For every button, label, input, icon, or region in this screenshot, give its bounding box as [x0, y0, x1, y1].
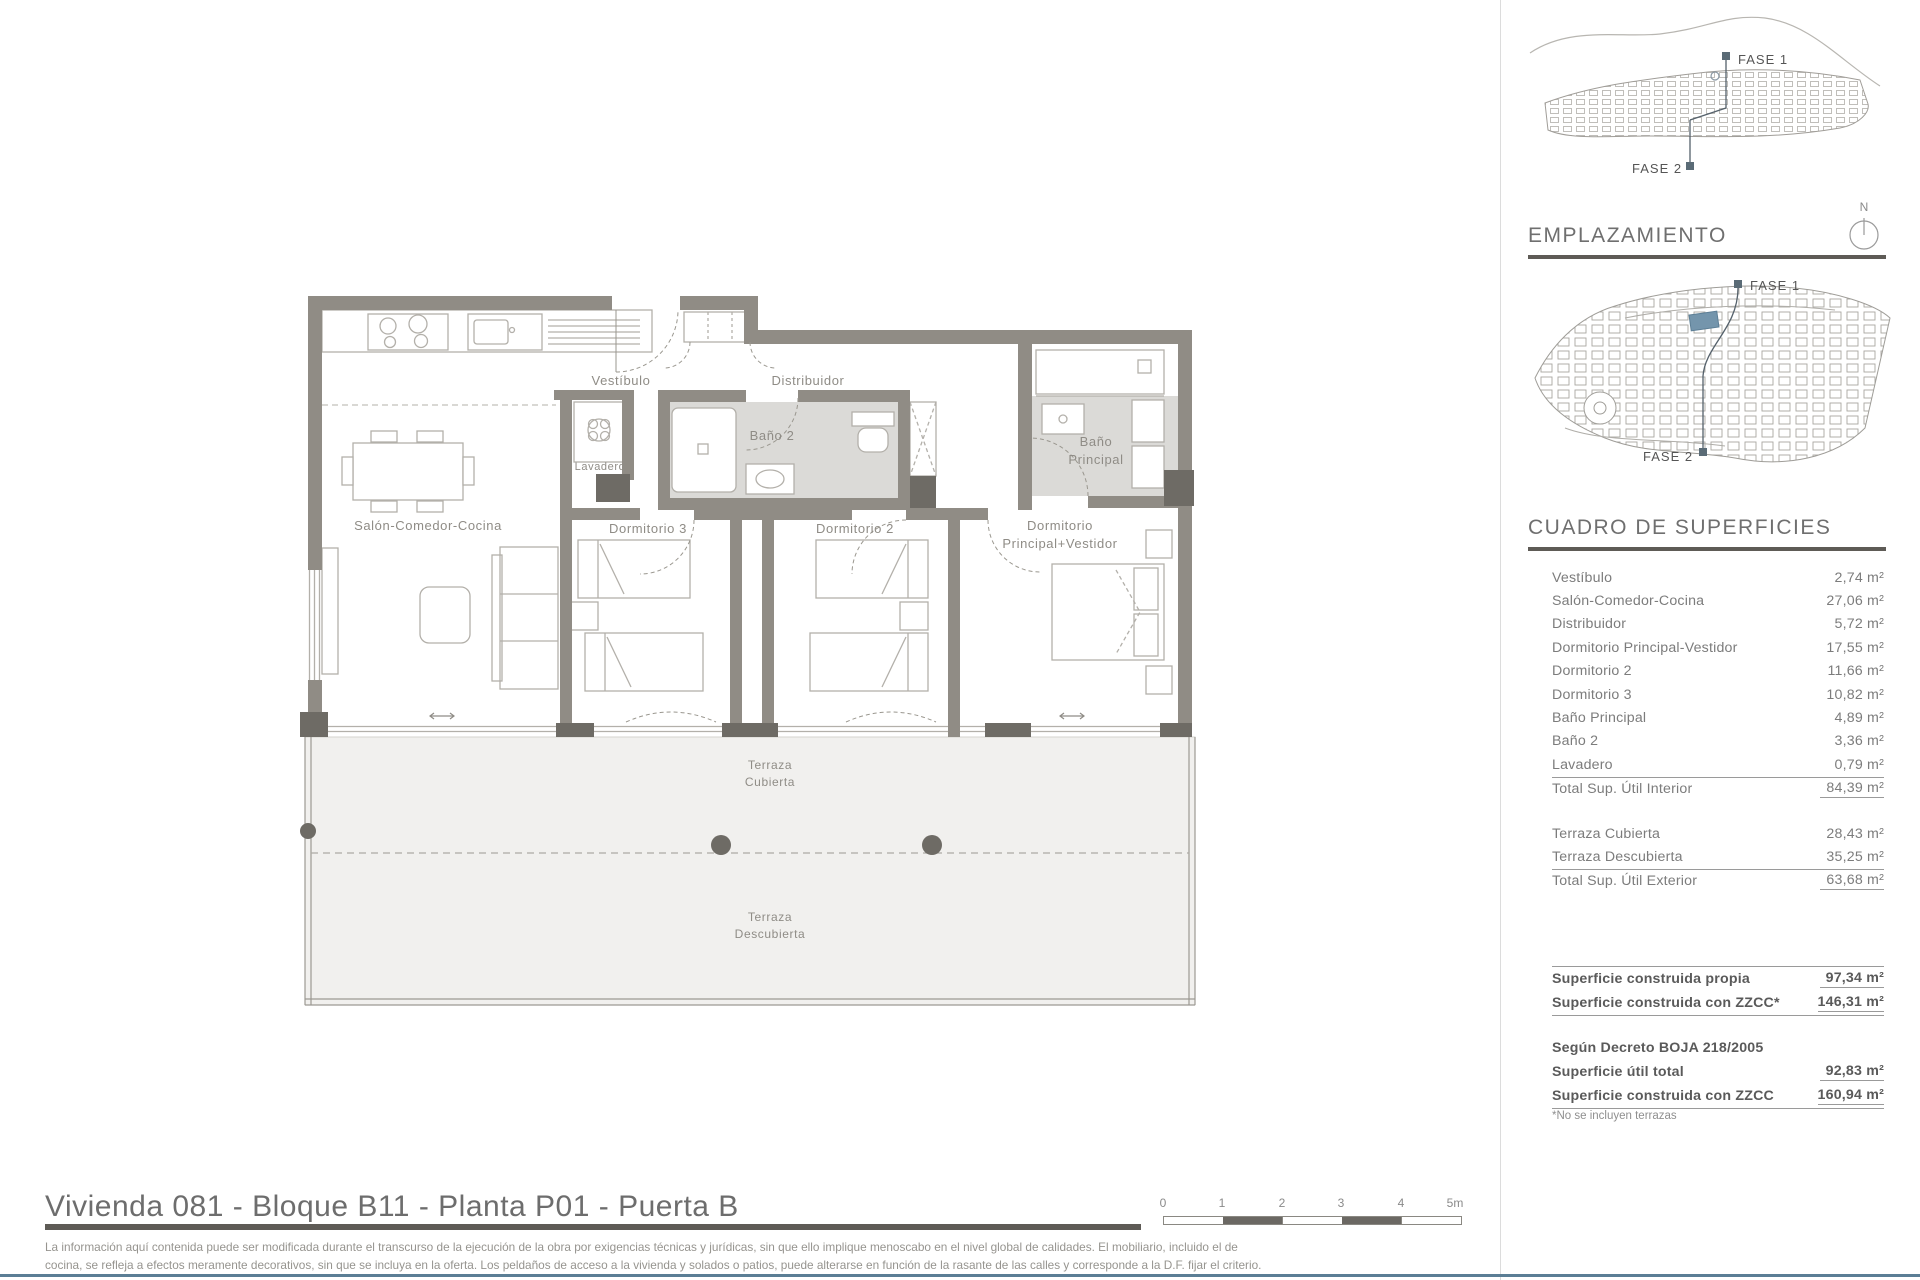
room-label-terraza-descubierta2: Descubierta — [735, 927, 806, 941]
room-label-dormitorio-principal2: Principal+Vestidor — [1002, 536, 1117, 551]
floor-plan-page: Vestíbulo Distribuidor Baño 2 Lavadero D… — [0, 0, 1920, 1280]
title-underline — [45, 1224, 1141, 1230]
terrace-pillar — [711, 835, 731, 855]
scale-tick-label: 3 — [1338, 1196, 1345, 1210]
scale-segment — [1401, 1217, 1461, 1224]
fase1-marker — [1722, 52, 1730, 60]
floor-plan-drawing: Vestíbulo Distribuidor Baño 2 Lavadero D… — [0, 0, 1500, 1280]
dining-table — [342, 431, 474, 512]
row-value: 17,55 m² — [1826, 640, 1884, 656]
site-overview-map: FASE 1 FASE 2 — [1510, 8, 1910, 178]
sofa — [492, 547, 558, 689]
row-value: 2,74 m² — [1835, 570, 1885, 586]
shower — [1036, 350, 1164, 394]
sink — [746, 464, 794, 494]
row-label: Lavadero — [1552, 757, 1613, 773]
row-value: 63,68 m² — [1820, 872, 1884, 890]
scale-tick-label: 5m — [1447, 1196, 1464, 1210]
slide-arrow — [430, 713, 1084, 719]
row-value: 146,31 m² — [1818, 994, 1884, 1012]
hall-closet — [910, 402, 936, 476]
tv-unit — [322, 548, 338, 674]
room-label-bano-principal: Baño — [1080, 434, 1113, 449]
room-label-distribuidor: Distribuidor — [772, 373, 845, 388]
row-label: Dormitorio 2 — [1552, 663, 1632, 679]
row-label: Baño Principal — [1552, 710, 1646, 726]
scale-segment — [1164, 1217, 1223, 1224]
fase2-label: FASE 2 — [1632, 161, 1682, 176]
total-exterior-row: Total Sup. Útil Exterior63,68 m² — [1552, 869, 1884, 893]
room-label-bano-principal2: Principal — [1068, 452, 1123, 467]
kitchen-counter — [322, 310, 652, 352]
row-value: 160,94 m² — [1818, 1087, 1884, 1105]
double-bed — [1052, 564, 1164, 660]
bed — [578, 540, 690, 598]
site-plan-map: FASE 1 FASE 2 — [1505, 258, 1915, 503]
row-label: Vestíbulo — [1552, 570, 1612, 586]
table-row: Dormitorio Principal-Vestidor17,55 m² — [1552, 636, 1884, 659]
scale-tick-label: 0 — [1160, 1196, 1167, 1210]
coffee-table — [420, 587, 470, 643]
room-label-lavadero: Lavadero — [575, 461, 626, 473]
table-row: Baño 23,36 m² — [1552, 730, 1884, 753]
highlighted-block — [1689, 311, 1719, 331]
bed — [810, 633, 928, 691]
table-row: Lavadero0,79 m² — [1552, 753, 1884, 776]
row-value: 28,43 m² — [1826, 826, 1884, 842]
row-value: 10,82 m² — [1826, 687, 1884, 703]
room-label-salon: Salón-Comedor-Cocina — [354, 518, 502, 533]
table-row: Vestíbulo2,74 m² — [1552, 566, 1884, 589]
table-row: Terraza Cubierta28,43 m² — [1552, 822, 1884, 845]
room-label-terraza-cubierta: Terraza — [748, 758, 792, 772]
terrace-pillar — [300, 823, 316, 839]
heading-underline — [1528, 547, 1886, 551]
terrace-pillar — [922, 835, 942, 855]
exterior-table: Terraza Cubierta28,43 m² Terraza Descubi… — [1552, 822, 1884, 893]
room-label-terraza-descubierta: Terraza — [748, 910, 792, 924]
table-row: Terraza Descubierta35,25 m² — [1552, 845, 1884, 868]
room-label-bano2: Baño 2 — [750, 428, 795, 443]
vanity — [1042, 404, 1084, 434]
toilet — [1132, 400, 1164, 442]
room-label-dormitorio2: Dormitorio 2 — [816, 521, 894, 536]
built-area-row: Superficie construida con ZZCC*146,31 m² — [1552, 991, 1884, 1016]
scale-segment — [1223, 1217, 1282, 1224]
row-label: Baño 2 — [1552, 733, 1598, 749]
scale-bar: 0 1 2 3 4 5m — [1163, 1196, 1461, 1230]
row-label: Superficie construida con ZZCC — [1552, 1088, 1774, 1104]
row-value: 3,36 m² — [1835, 733, 1885, 749]
room-label-dormitorio-principal: Dormitorio — [1027, 518, 1093, 533]
fase2-marker — [1699, 448, 1707, 456]
row-value: 97,34 m² — [1820, 970, 1884, 988]
row-label: Terraza Descubierta — [1552, 849, 1683, 865]
disclaimer-line-1: La información aquí contenida puede ser … — [45, 1239, 1505, 1256]
row-label: Dormitorio 3 — [1552, 687, 1632, 703]
buildings-band — [1545, 70, 1868, 137]
room-label-dormitorio3: Dormitorio 3 — [609, 521, 687, 536]
table-row: Dormitorio 211,66 m² — [1552, 660, 1884, 683]
decreto-row: Superficie construida con ZZCC160,94 m² — [1552, 1084, 1884, 1109]
row-label: Terraza Cubierta — [1552, 826, 1660, 842]
built-area-row: Superficie construida propia97,34 m² — [1552, 966, 1884, 991]
sidebar-divider — [1500, 0, 1501, 1280]
row-label: Dormitorio Principal-Vestidor — [1552, 640, 1738, 656]
fase2-marker — [1686, 162, 1694, 170]
built-area-table: Superficie construida propia97,34 m² Sup… — [1552, 966, 1884, 1016]
scale-segment — [1282, 1217, 1342, 1224]
footer-accent-line — [0, 1274, 1920, 1277]
scale-tick-label: 2 — [1279, 1196, 1286, 1210]
table-row: Distribuidor5,72 m² — [1552, 613, 1884, 636]
nightstand — [1146, 530, 1172, 558]
decreto-title: Según Decreto BOJA 218/2005 — [1552, 1040, 1763, 1056]
row-value: 84,39 m² — [1820, 780, 1884, 798]
row-label: Superficie construida con ZZCC* — [1552, 995, 1780, 1011]
emplazamiento-title: EMPLAZAMIENTO — [1528, 224, 1727, 247]
table-row: Salón-Comedor-Cocina27,06 m² — [1552, 589, 1884, 612]
row-label: Total Sup. Útil Exterior — [1552, 873, 1697, 889]
table-row: Baño Principal4,89 m² — [1552, 706, 1884, 729]
row-label: Salón-Comedor-Cocina — [1552, 593, 1704, 609]
row-value: 27,06 m² — [1826, 593, 1884, 609]
row-value: 92,83 m² — [1820, 1063, 1884, 1081]
row-value: 5,72 m² — [1835, 616, 1885, 632]
row-value: 4,89 m² — [1835, 710, 1885, 726]
bed — [585, 633, 703, 691]
row-value: 35,25 m² — [1826, 849, 1884, 865]
fase1-label: FASE 1 — [1750, 278, 1800, 293]
decreto-row: Superficie útil total92,83 m² — [1552, 1060, 1884, 1084]
row-value: 11,66 m² — [1827, 663, 1884, 679]
bidet — [1132, 446, 1164, 488]
cuadro-title: CUADRO DE SUPERFICIES — [1528, 516, 1831, 539]
cuadro-heading: CUADRO DE SUPERFICIES — [1528, 516, 1886, 551]
scale-tick-label: 1 — [1219, 1196, 1226, 1210]
total-interior-row: Total Sup. Útil Interior84,39 m² — [1552, 777, 1884, 801]
fase2-label: FASE 2 — [1643, 449, 1693, 464]
row-label: Distribuidor — [1552, 616, 1626, 632]
bed — [816, 540, 928, 598]
decreto-heading: Según Decreto BOJA 218/2005 — [1552, 1036, 1884, 1060]
disclaimer-line-2: cocina, se refleja a efectos meramente d… — [45, 1257, 1505, 1274]
room-label-vestibulo: Vestíbulo — [592, 373, 651, 388]
row-label: Total Sup. Útil Interior — [1552, 781, 1692, 797]
scale-segment — [1342, 1217, 1401, 1224]
nightstand — [900, 602, 928, 630]
shower-tray — [672, 408, 736, 492]
decreto-table: Según Decreto BOJA 218/2005 Superficie ú… — [1552, 1036, 1884, 1109]
roundabout — [1584, 392, 1616, 424]
compass-n-label: N — [1860, 200, 1869, 214]
row-value: 0,79 m² — [1835, 757, 1885, 773]
room-label-terraza-cubierta2: Cubierta — [745, 775, 795, 789]
table-row: Dormitorio 310,82 m² — [1552, 683, 1884, 706]
fase1-label: FASE 1 — [1738, 52, 1788, 67]
washing-machine — [574, 402, 624, 462]
row-label: Superficie construida propia — [1552, 971, 1750, 987]
areas-table: Vestíbulo2,74 m² Salón-Comedor-Cocina27,… — [1552, 566, 1884, 801]
window — [310, 570, 320, 680]
row-label: Superficie útil total — [1552, 1064, 1684, 1080]
terraces-footnote: *No se incluyen terrazas — [1552, 1110, 1677, 1122]
north-compass: N — [1838, 198, 1890, 254]
scale-tick-label: 4 — [1398, 1196, 1405, 1210]
nightstand — [1146, 666, 1172, 694]
page-title: Vivienda 081 - Bloque B11 - Planta P01 -… — [45, 1190, 1165, 1224]
scale-bar-segments — [1163, 1216, 1462, 1225]
emplazamiento-heading: EMPLAZAMIENTO — [1528, 224, 1886, 259]
nightstand — [570, 602, 598, 630]
fase1-marker — [1734, 280, 1742, 288]
